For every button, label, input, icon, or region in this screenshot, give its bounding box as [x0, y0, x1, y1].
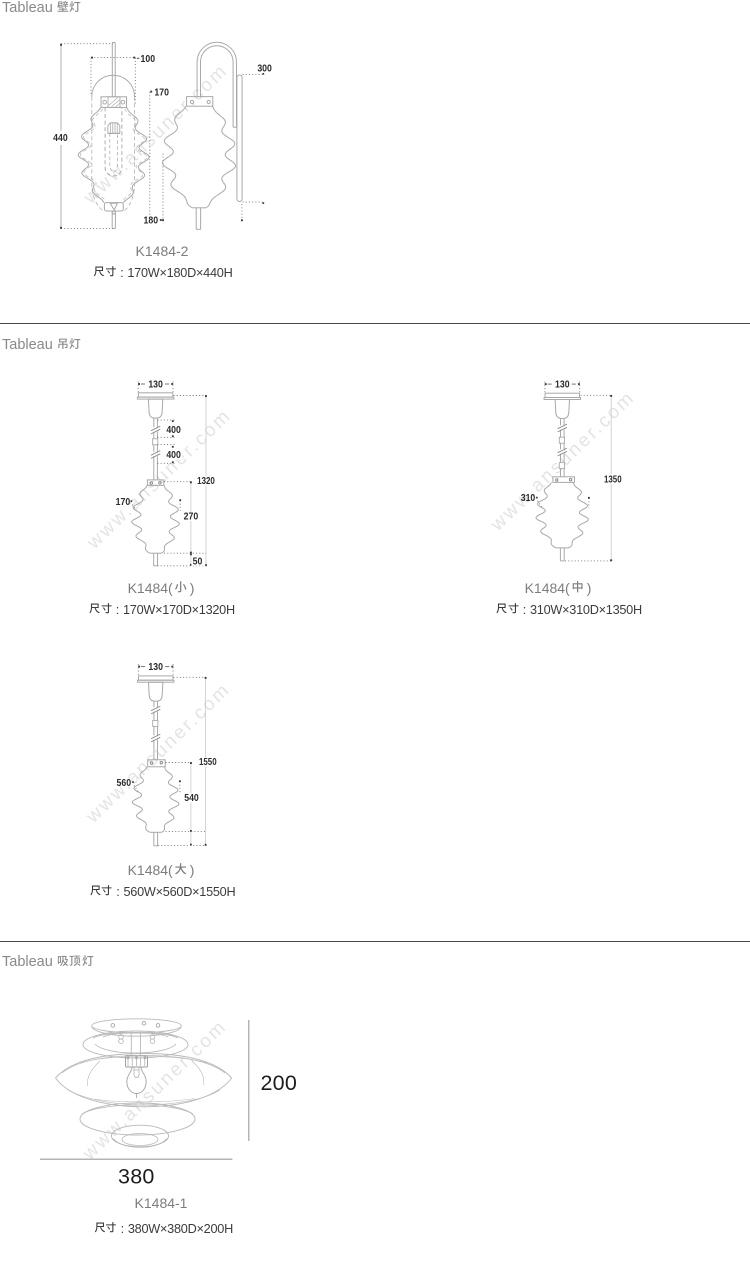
svg-text:170: 170 [154, 87, 169, 98]
svg-text:560: 560 [117, 778, 132, 789]
svg-text:400: 400 [166, 424, 181, 435]
svg-text:440: 440 [53, 133, 68, 144]
svg-text:1350: 1350 [604, 474, 622, 485]
svg-text:170: 170 [116, 497, 131, 508]
svg-text:50: 50 [193, 556, 203, 567]
svg-text:130: 130 [148, 379, 163, 390]
svg-text:1320: 1320 [197, 475, 215, 486]
svg-text:200: 200 [261, 1071, 297, 1095]
svg-text:300: 300 [257, 63, 272, 74]
svg-text:400: 400 [166, 450, 181, 461]
svg-text:100: 100 [141, 54, 156, 65]
svg-text:380: 380 [118, 1165, 154, 1189]
svg-text:130: 130 [555, 379, 570, 390]
svg-text:540: 540 [184, 793, 199, 804]
svg-text:www.ansuner.com: www.ansuner.com [79, 60, 232, 209]
svg-text:1550: 1550 [199, 756, 217, 767]
svg-text:180: 180 [144, 215, 159, 226]
svg-text:270: 270 [184, 511, 199, 522]
svg-text:130: 130 [148, 662, 163, 673]
svg-text:www.ansuner.com: www.ansuner.com [486, 387, 639, 536]
svg-text:310: 310 [521, 493, 536, 504]
